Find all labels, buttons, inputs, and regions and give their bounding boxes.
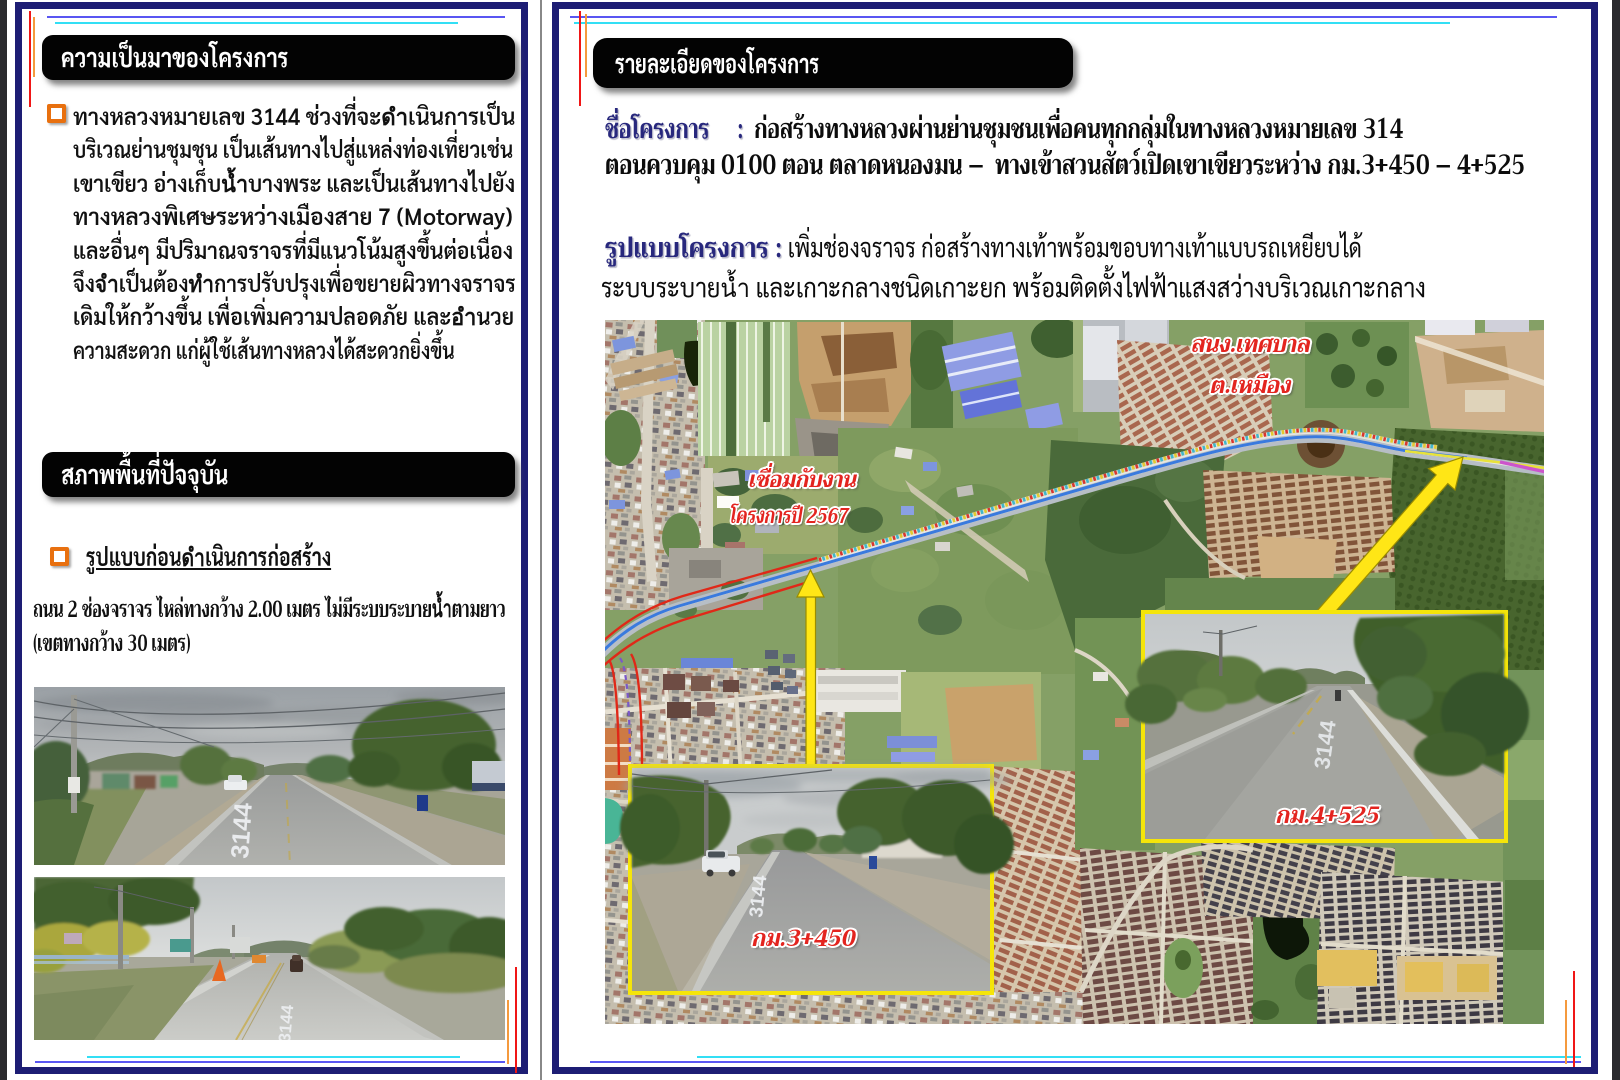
svg-text:3144: 3144	[746, 874, 771, 919]
svg-text:3144: 3144	[275, 1003, 297, 1040]
svg-text:3144: 3144	[226, 802, 258, 860]
